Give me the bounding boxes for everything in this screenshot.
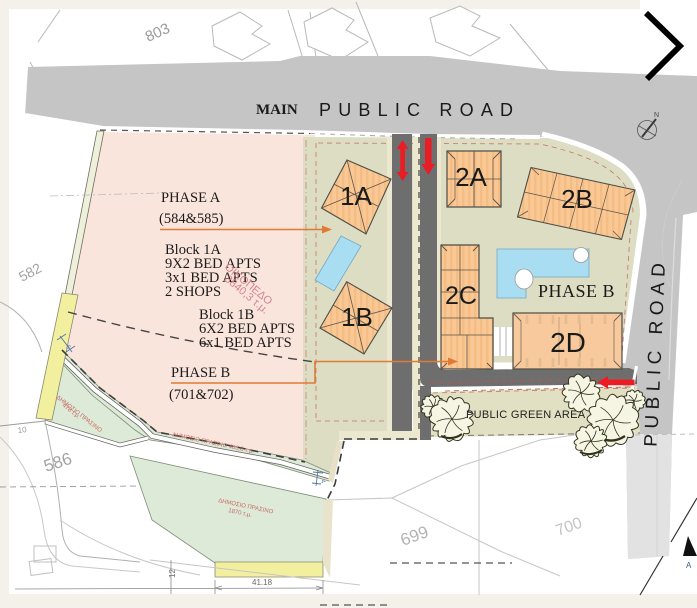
svg-text:6x1 BED APTS: 6x1 BED APTS (199, 335, 292, 351)
svg-text:41.18: 41.18 (252, 578, 273, 587)
svg-text:2B: 2B (561, 184, 593, 214)
svg-text:PUBLIC GREEN AREA: PUBLIC GREEN AREA (466, 409, 586, 421)
svg-text:2D: 2D (550, 327, 586, 358)
svg-text:PHASE B: PHASE B (538, 281, 615, 301)
svg-text:2 SHOPS: 2 SHOPS (165, 284, 221, 300)
svg-text:10: 10 (17, 425, 27, 435)
svg-text:12: 12 (168, 569, 177, 578)
svg-text:MAIN: MAIN (256, 102, 298, 118)
svg-text:PHASE B: PHASE B (171, 365, 230, 381)
svg-text:PHASE A: PHASE A (161, 190, 221, 206)
svg-text:N: N (654, 112, 659, 119)
svg-text:1B: 1B (341, 302, 373, 332)
svg-text:PUBLIC ROAD: PUBLIC ROAD (319, 100, 520, 120)
svg-text:2C: 2C (445, 282, 477, 310)
svg-text:2A: 2A (455, 162, 487, 192)
svg-text:1A: 1A (340, 181, 372, 211)
svg-text:(584&585): (584&585) (159, 211, 224, 227)
svg-text:A: A (686, 561, 692, 570)
svg-text:(701&702): (701&702) (169, 387, 234, 403)
